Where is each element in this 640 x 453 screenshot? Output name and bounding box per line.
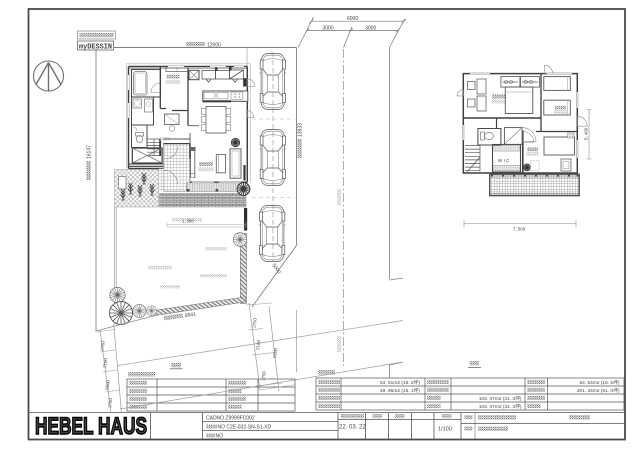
svg-text:201. 34m2 (61. 0坪): 201. 34m2 (61. 0坪) [577, 387, 620, 394]
svg-text:NO: NO [216, 434, 224, 440]
svg-text:54. 54m2 (16. 5坪): 54. 54m2 (16. 5坪) [580, 379, 620, 386]
svg-text:3000: 3000 [323, 25, 334, 31]
svg-text:1, 380: 1, 380 [182, 219, 194, 224]
svg-text:53. 51m2 (16. 2坪): 53. 51m2 (16. 2坪) [380, 379, 420, 386]
svg-text:103. 47m2 (31. 3坪): 103. 47m2 (31. 3坪) [479, 395, 522, 402]
svg-text:3000: 3000 [365, 25, 376, 31]
svg-text:7, 500: 7, 500 [513, 227, 526, 232]
svg-text:103. 47m2 (31. 3坪): 103. 47m2 (31. 3坪) [479, 403, 522, 410]
svg-text:HEBEL HAUS: HEBEL HAUS [35, 413, 147, 440]
svg-text:CADNO Z9999FC002: CADNO Z9999FC002 [206, 416, 255, 422]
svg-text:49. 96m2 (15. 1坪): 49. 96m2 (15. 1坪) [380, 387, 420, 394]
svg-text:12000: 12000 [207, 43, 221, 49]
svg-text:6000: 6000 [347, 16, 358, 22]
svg-text:5, 460: 5, 460 [584, 127, 589, 140]
svg-text:myDESSIN: myDESSIN [79, 43, 112, 51]
svg-text:W I C: W I C [498, 158, 510, 163]
svg-text:22. 03. 22: 22. 03. 22 [339, 425, 366, 431]
svg-text:16147: 16147 [87, 145, 93, 159]
svg-text:1/100: 1/100 [438, 427, 452, 433]
svg-text:NO C2E-032-SN-S1-XD: NO C2E-032-SN-S1-XD [218, 425, 272, 431]
svg-text:13933: 13933 [298, 123, 304, 137]
